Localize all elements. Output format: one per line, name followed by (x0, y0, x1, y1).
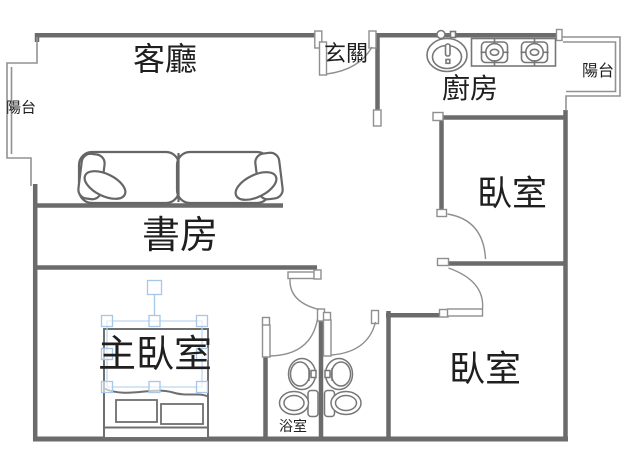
room-label-master-bedroom[interactable]: 主臥室 (98, 336, 212, 374)
sofa-icon (77, 152, 283, 206)
room-label-bathroom: 浴室 (279, 419, 307, 433)
upper-bedroom-door (437, 210, 486, 266)
floor-plan: 客廳 玄關 廚房 陽台 陽台 書房 臥室 臥室 主臥室 浴室 (0, 0, 640, 462)
toilet-left-icon (280, 391, 319, 417)
rotation-handle[interactable] (148, 281, 162, 295)
room-label-balcony-right: 陽台 (582, 64, 614, 80)
lower-bedroom-door (440, 268, 483, 317)
room-label-bedroom-upper: 臥室 (477, 177, 547, 212)
room-label-bedroom-lower: 臥室 (449, 351, 521, 387)
stove-icon (472, 39, 556, 67)
bathroom-right-door (324, 311, 379, 357)
room-label-kitchen: 廚房 (442, 75, 498, 103)
toilet-right-icon (325, 391, 362, 417)
bathroom-sink-right-icon (325, 359, 353, 390)
master-bedroom-door (288, 270, 325, 321)
room-label-entryway: 玄關 (324, 43, 368, 65)
room-label-living: 客廳 (133, 43, 197, 75)
floor-plan-drawing (0, 0, 640, 462)
bathroom-left-door (263, 318, 318, 358)
room-label-balcony-left: 陽台 (6, 101, 36, 116)
room-label-study: 書房 (142, 217, 218, 255)
bathroom-sink-left-icon (289, 359, 317, 390)
kitchen-opening-jamb (433, 113, 443, 121)
